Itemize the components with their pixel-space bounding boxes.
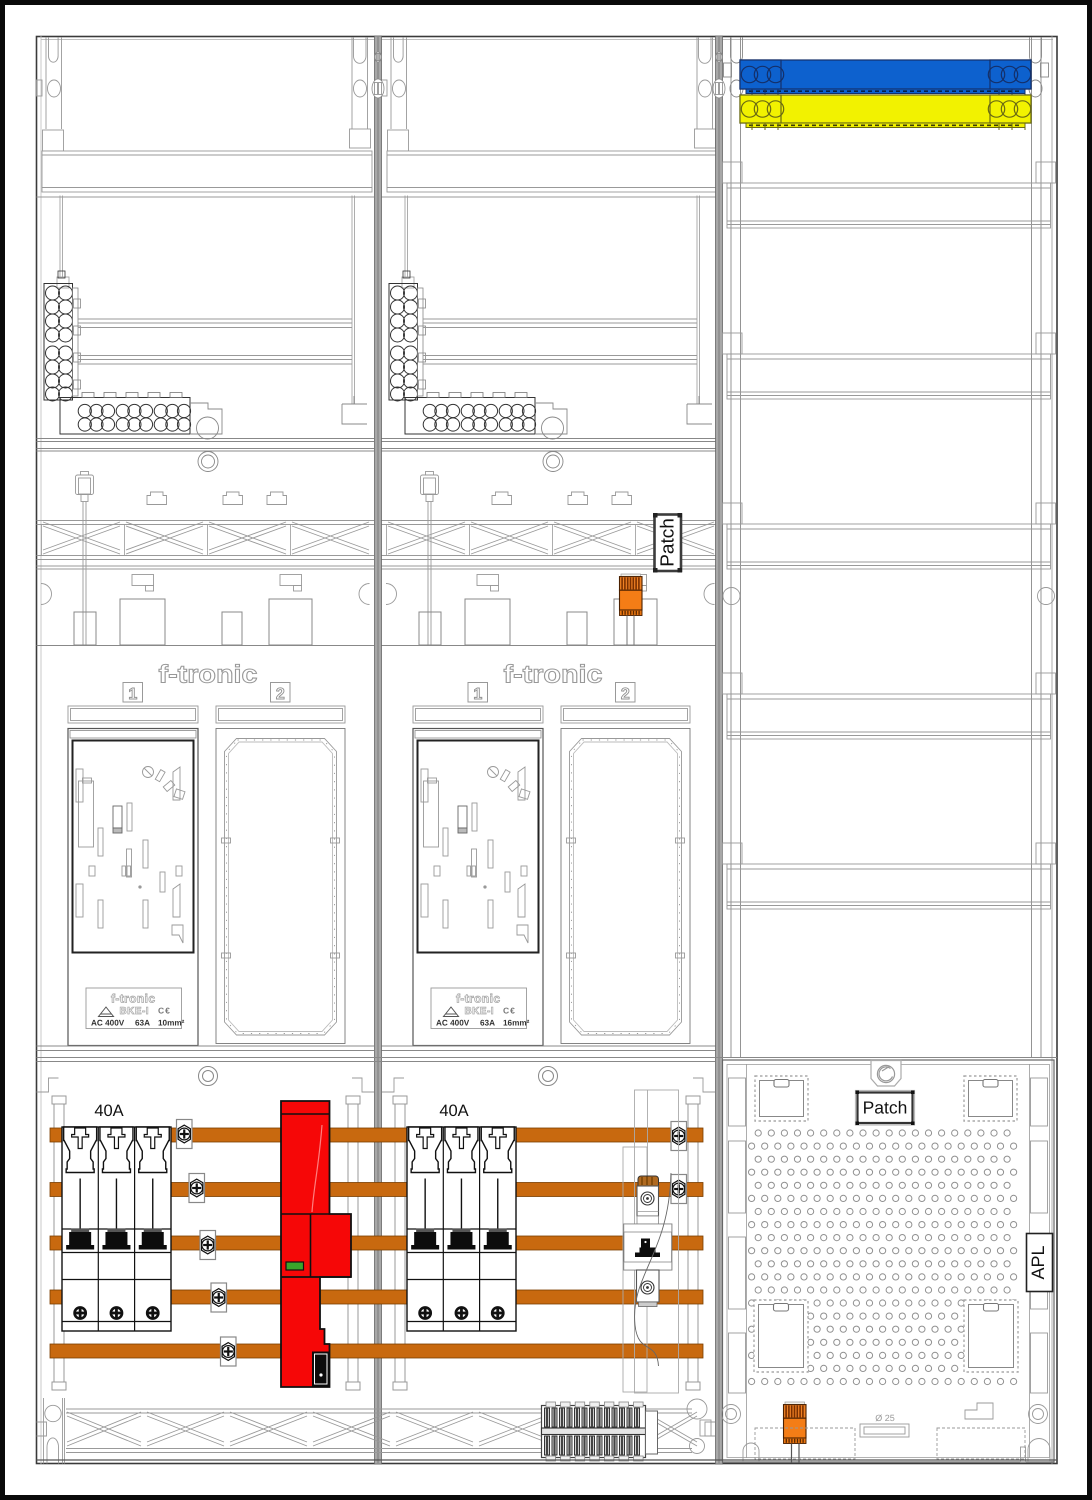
svg-text:1: 1 — [473, 686, 482, 703]
svg-text:C€: C€ — [503, 1006, 515, 1016]
svg-text:2: 2 — [276, 686, 285, 703]
svg-text:1: 1 — [128, 686, 137, 703]
svg-text:C€: C€ — [158, 1006, 170, 1016]
svg-text:AC 400V: AC 400V — [436, 1019, 470, 1028]
svg-text:APL: APL — [1028, 1245, 1048, 1279]
svg-text:f-tronic: f-tronic — [504, 661, 603, 689]
svg-text:Patch: Patch — [658, 518, 679, 567]
svg-text:2: 2 — [621, 686, 630, 703]
svg-text:BKE-I: BKE-I — [465, 1006, 494, 1017]
svg-text:40A: 40A — [94, 1102, 123, 1120]
svg-text:Ø 25: Ø 25 — [875, 1413, 895, 1423]
svg-text:16mm²: 16mm² — [503, 1019, 530, 1028]
svg-text:f-tronic: f-tronic — [456, 992, 500, 1006]
svg-text:BKE-I: BKE-I — [120, 1006, 149, 1017]
svg-text:Patch: Patch — [863, 1098, 908, 1118]
svg-text:63A: 63A — [480, 1019, 495, 1028]
svg-text:AC 400V: AC 400V — [91, 1019, 125, 1028]
svg-text:f-tronic: f-tronic — [159, 661, 258, 689]
svg-text:10mm²: 10mm² — [158, 1019, 185, 1028]
svg-text:40A: 40A — [439, 1102, 468, 1120]
svg-text:63A: 63A — [135, 1019, 150, 1028]
svg-text:f-tronic: f-tronic — [111, 992, 155, 1006]
